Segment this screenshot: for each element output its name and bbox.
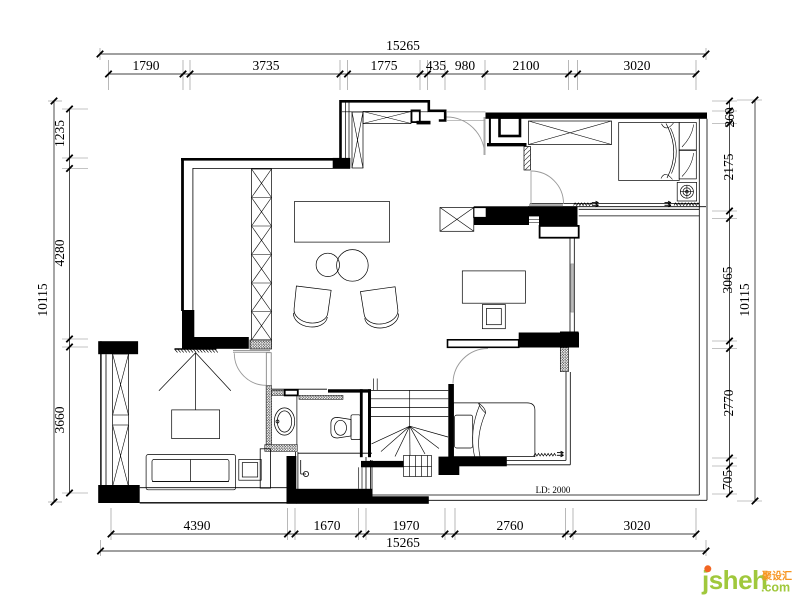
svg-text:260: 260 xyxy=(722,107,737,128)
svg-text:1775: 1775 xyxy=(371,58,398,73)
svg-text:435: 435 xyxy=(426,58,447,73)
svg-text:3660: 3660 xyxy=(52,406,67,433)
svg-text:.com: .com xyxy=(761,581,790,595)
svg-text:3020: 3020 xyxy=(624,518,651,533)
svg-text:4280: 4280 xyxy=(52,239,67,266)
svg-text:1670: 1670 xyxy=(314,518,341,533)
svg-text:10115: 10115 xyxy=(35,283,50,316)
svg-text:15265: 15265 xyxy=(386,535,420,550)
svg-text:705: 705 xyxy=(720,470,735,491)
svg-text:980: 980 xyxy=(455,58,476,73)
svg-text:2175: 2175 xyxy=(721,153,736,180)
svg-text:3735: 3735 xyxy=(253,58,280,73)
svg-text:2100: 2100 xyxy=(513,58,540,73)
svg-text:1970: 1970 xyxy=(393,518,420,533)
svg-text:10115: 10115 xyxy=(737,283,752,316)
svg-text:3065: 3065 xyxy=(720,266,735,293)
svg-text:LD: 2000: LD: 2000 xyxy=(536,485,571,495)
svg-text:3020: 3020 xyxy=(624,58,651,73)
svg-text:4390: 4390 xyxy=(184,518,211,533)
svg-text:1790: 1790 xyxy=(133,58,160,73)
svg-text:1235: 1235 xyxy=(52,120,67,147)
svg-text:15265: 15265 xyxy=(386,38,420,53)
svg-text:2770: 2770 xyxy=(721,389,736,416)
svg-text:2760: 2760 xyxy=(497,518,524,533)
